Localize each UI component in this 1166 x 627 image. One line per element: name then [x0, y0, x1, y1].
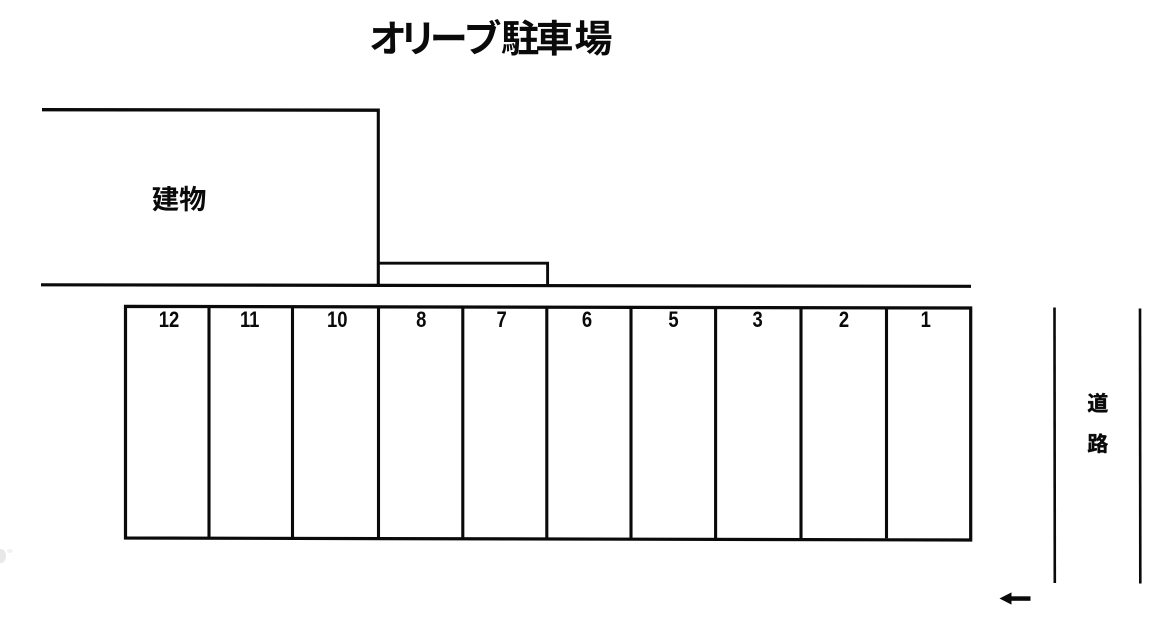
svg-text:11: 11: [240, 307, 260, 332]
svg-text:12: 12: [159, 307, 180, 332]
svg-text:8: 8: [416, 307, 426, 332]
svg-text:3: 3: [752, 307, 762, 332]
svg-text:10: 10: [327, 307, 348, 332]
svg-text:2: 2: [839, 307, 849, 332]
svg-text:1: 1: [921, 307, 931, 332]
svg-text:7: 7: [496, 307, 506, 332]
svg-text:6: 6: [582, 307, 592, 332]
svg-text:5: 5: [668, 307, 678, 332]
